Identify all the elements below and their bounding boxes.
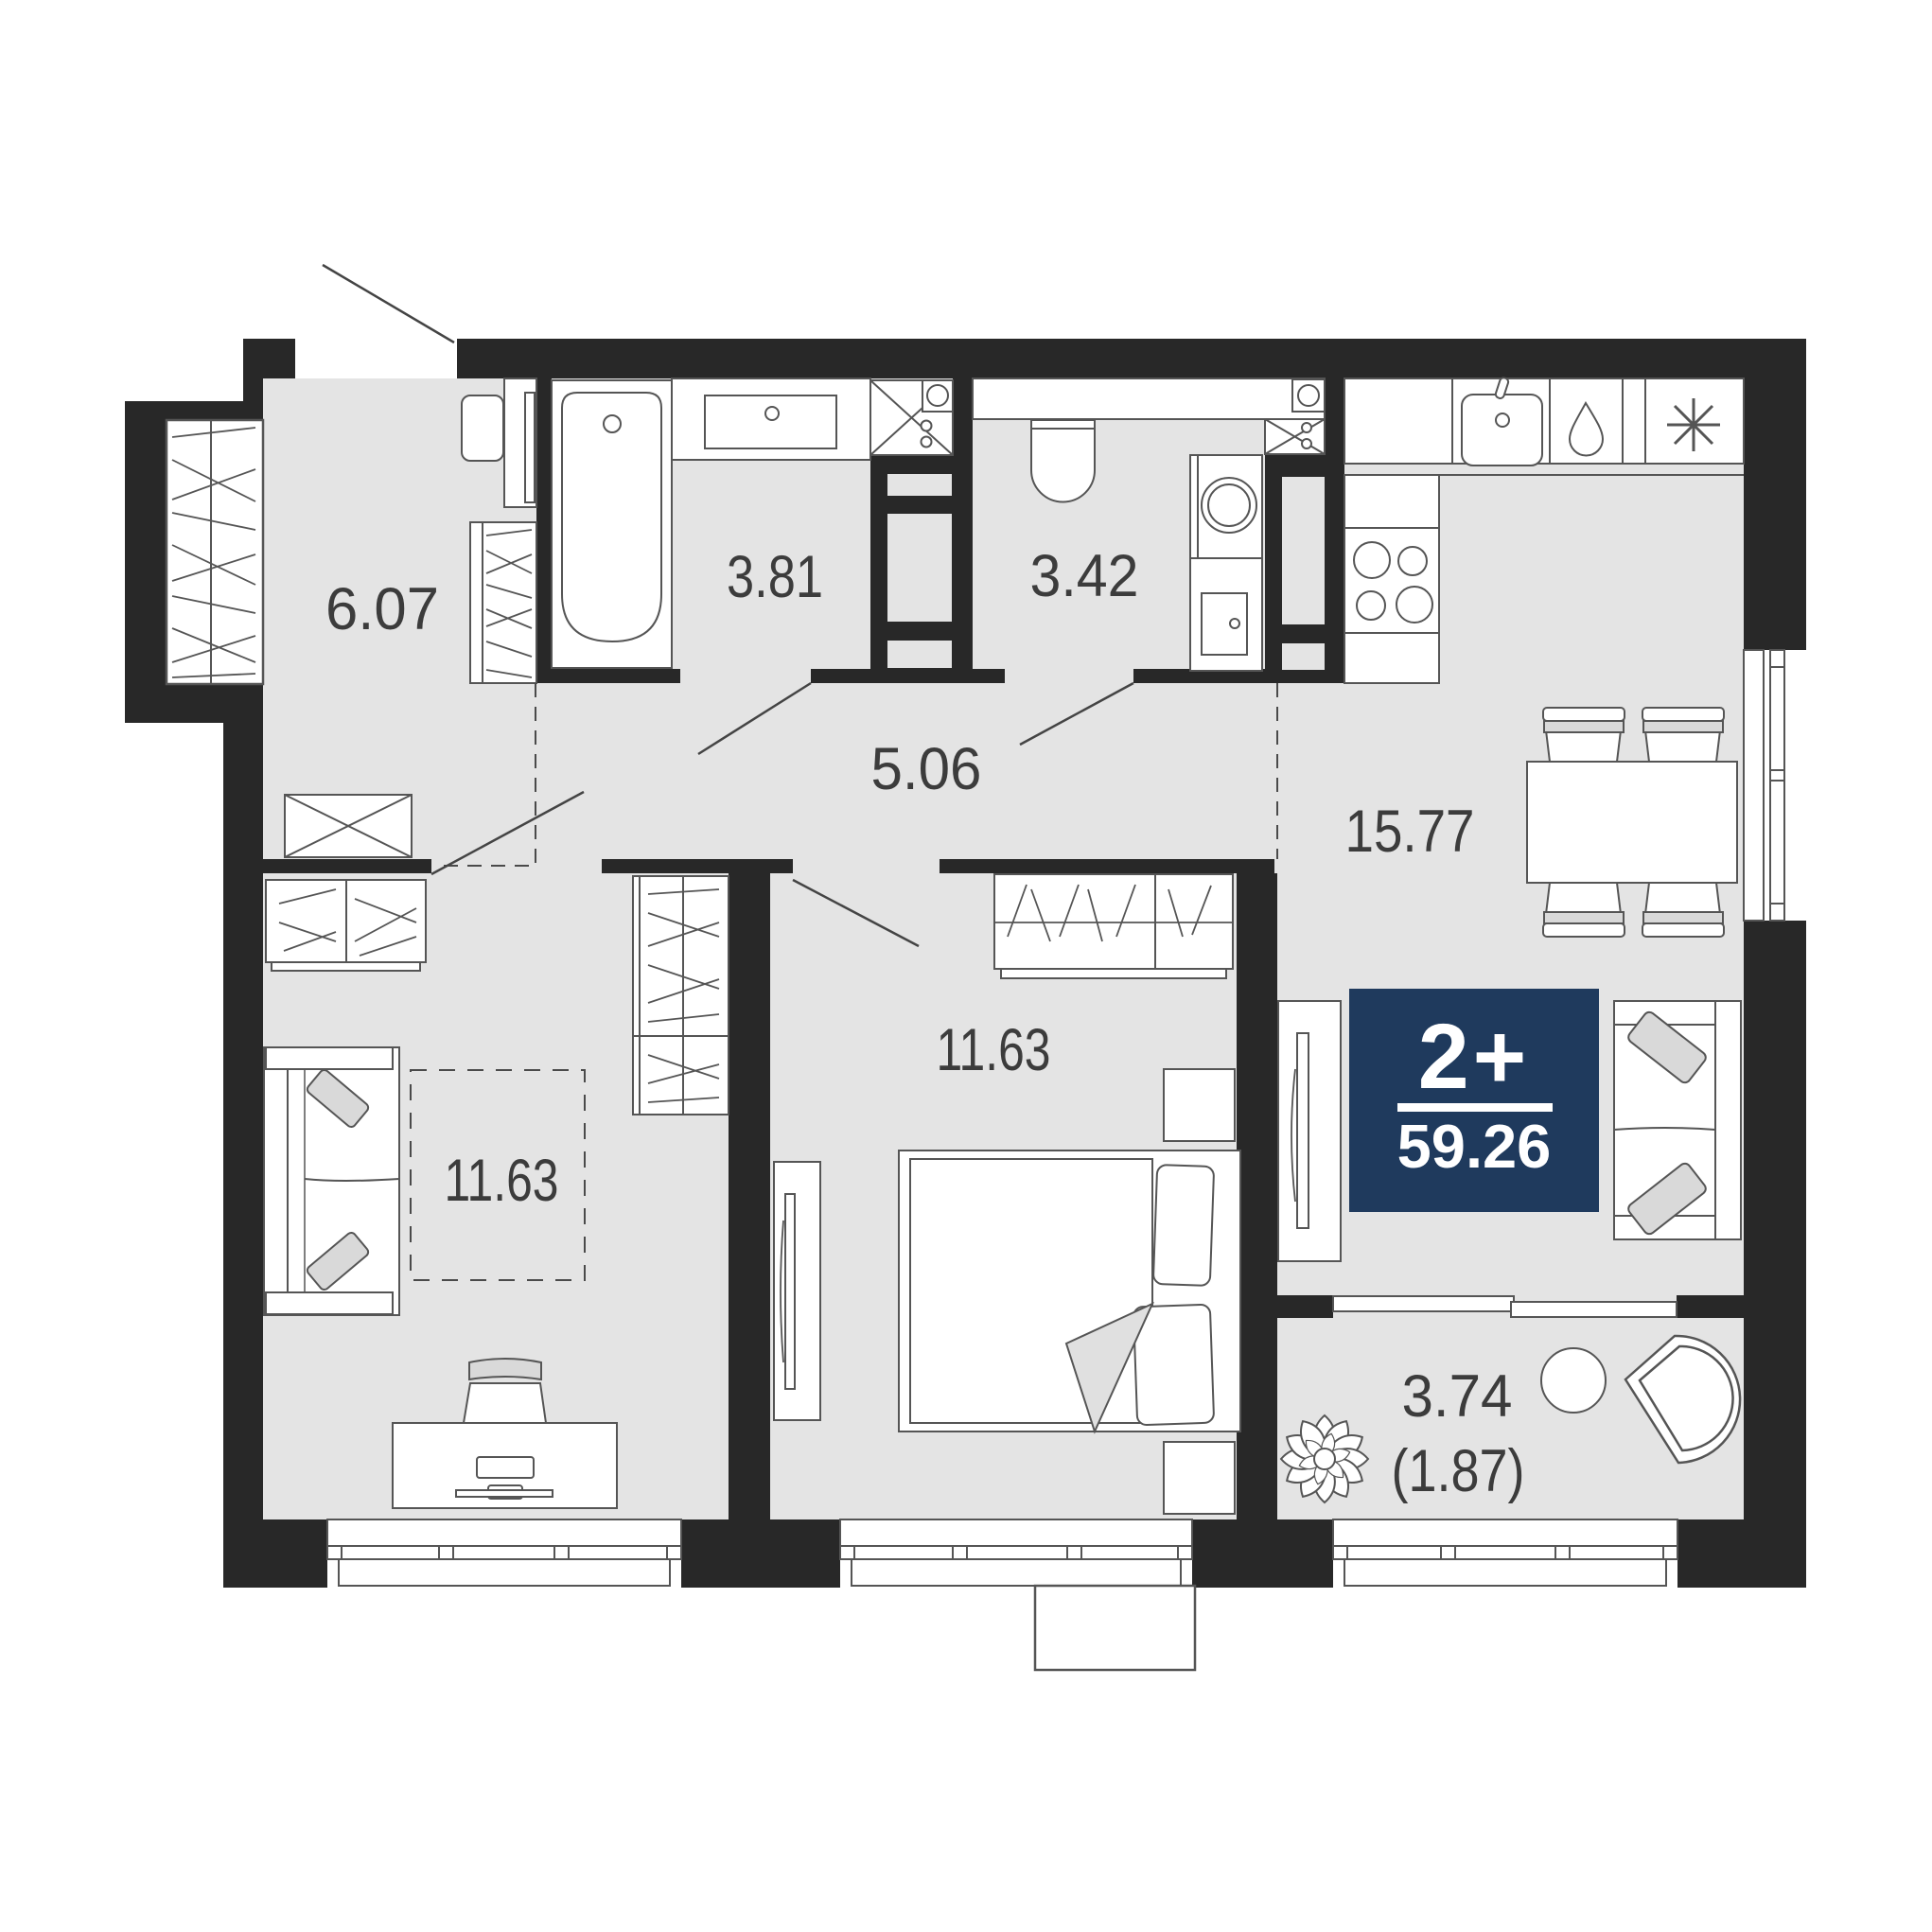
svg-text:15.77: 15.77 (1345, 799, 1475, 865)
svg-text:3.81: 3.81 (727, 544, 823, 610)
svg-text:2+: 2+ (1418, 1005, 1531, 1108)
svg-text:59.26: 59.26 (1397, 1112, 1552, 1181)
svg-text:11.63: 11.63 (445, 1148, 559, 1214)
svg-text:3.42: 3.42 (1030, 543, 1139, 609)
svg-text:3.74: 3.74 (1402, 1363, 1513, 1430)
svg-text:(1.87): (1.87) (1392, 1438, 1525, 1504)
svg-text:6.07: 6.07 (325, 576, 439, 642)
svg-text:5.06: 5.06 (871, 736, 982, 802)
svg-text:11.63: 11.63 (937, 1017, 1051, 1083)
